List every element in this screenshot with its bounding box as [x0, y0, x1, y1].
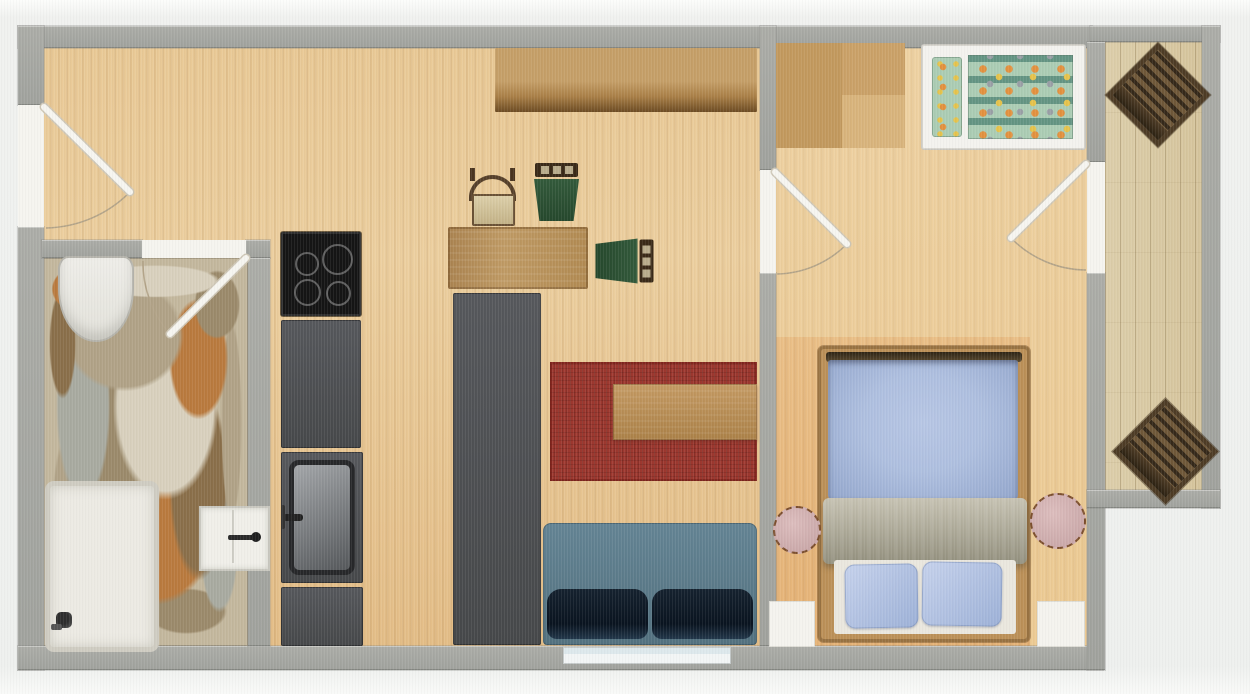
bedroom-door-panel: [775, 172, 847, 244]
bedroom-door[interactable]: [775, 172, 847, 274]
bathroom-door[interactable]: [143, 258, 246, 334]
balcony-door-panel: [1011, 164, 1086, 238]
bedroom-door-swing-arc: [777, 244, 847, 274]
entrance-door-swing-arc: [46, 192, 130, 228]
doors-layer: [0, 0, 1250, 694]
entrance-door-panel: [44, 107, 130, 192]
entrance-door[interactable]: [44, 107, 130, 228]
floorplan-canvas: [0, 0, 1250, 694]
balcony-door-swing-arc: [1011, 238, 1086, 270]
bathroom-door-swing-arc: [143, 261, 170, 334]
balcony-door[interactable]: [1011, 164, 1086, 270]
bathroom-door-panel: [170, 258, 246, 334]
